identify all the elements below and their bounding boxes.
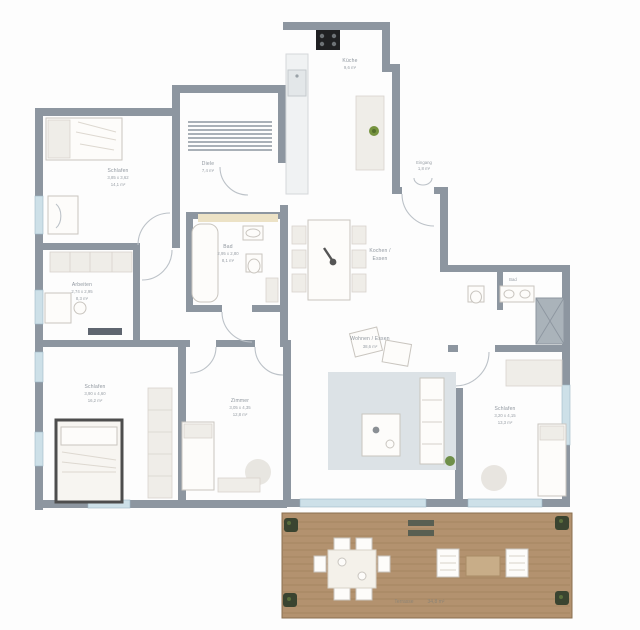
low-table [466,556,500,576]
label-bath-area: 8,1 m² [222,258,235,263]
label-child-name: Zimmer [231,398,249,404]
outdoor-table [328,550,376,588]
label-bedroom3-area: 13,3 m² [498,420,513,425]
stove-icon [316,30,340,50]
living-furniture [328,327,456,470]
label-bath2-name: Bad [509,277,517,282]
label-kitchen-area: 9,6 m² [344,65,357,70]
label-entrance-name: Eingang [416,160,432,165]
label-bedroom3-name: Schlafen [494,406,515,412]
label-bedroom3-dims: 3,20 x 4,15 [494,413,516,418]
staircase [188,122,272,150]
label-bath-dims: 2,95 x 2,80 [217,251,239,256]
label-terrace-name: Terrasse [394,599,413,605]
floor-plan-drawing: Schlafen 3,85 x 3,62 14,1 m² Arbeiten 2,… [0,0,640,630]
label-hall-name: Diele [202,161,214,167]
label-kitchen-name: Küche [342,58,357,64]
label-bedroom1-dims: 3,85 x 3,62 [107,175,129,180]
label-cooking-line2: Essen [373,256,388,262]
label-bedroom1-area: 14,1 m² [111,182,126,187]
bathroom-furniture [192,214,278,302]
entrance-furniture [414,178,432,185]
bedroom2-furniture [56,388,172,502]
desk [45,293,71,323]
label-cooking-line1: Kochen / [369,248,391,254]
round-rug [481,465,507,491]
plant-icon [445,456,455,466]
label-bedroom2-dims: 3,90 x 4,60 [84,391,106,396]
label-hall-area: 7,4 m² [202,168,215,173]
label-study-name: Arbeiten [72,282,92,288]
label-child-area: 12,8 m² [233,412,248,417]
label-bath-name: Bad [223,244,233,250]
label-bedroom2-name: Schlafen [84,384,105,390]
dining-table [308,220,350,300]
sideboard-dark [88,328,122,335]
sink [288,70,306,96]
wardrobe [148,388,172,498]
dresser [48,196,78,234]
label-living-area: 38,6 m² [363,344,378,349]
armchair [350,327,383,357]
label-child-dims: 3,05 x 4,35 [229,405,251,410]
chair [74,302,86,314]
dresser [218,478,260,492]
label-living-name: Wohnen / Essen [350,336,389,342]
kitchen-furniture [286,30,384,194]
wardrobe [50,252,132,272]
child-room-furniture [182,422,271,492]
label-bedroom1-name: Schlafen [107,168,128,174]
label-study-dims: 2,74 x 2,95 [71,289,93,294]
sofa [420,378,444,464]
label-study-area: 8,3 m² [76,296,89,301]
bathroom2-furniture [468,286,564,344]
armchair [382,340,411,366]
label-bedroom2-area: 16,2 m² [88,398,103,403]
bedroom3-furniture [481,360,566,496]
dresser [506,360,562,386]
dining-furniture [292,220,366,300]
label-entrance-area: 1,8 m² [418,166,431,171]
bathtub [192,224,218,302]
radiator [266,278,278,302]
shelf [198,214,278,222]
floor-plan-canvas: Schlafen 3,85 x 3,62 14,1 m² Arbeiten 2,… [0,0,640,630]
label-terrace-area: 34,8 m² [428,599,445,605]
coffee-table [362,414,400,456]
